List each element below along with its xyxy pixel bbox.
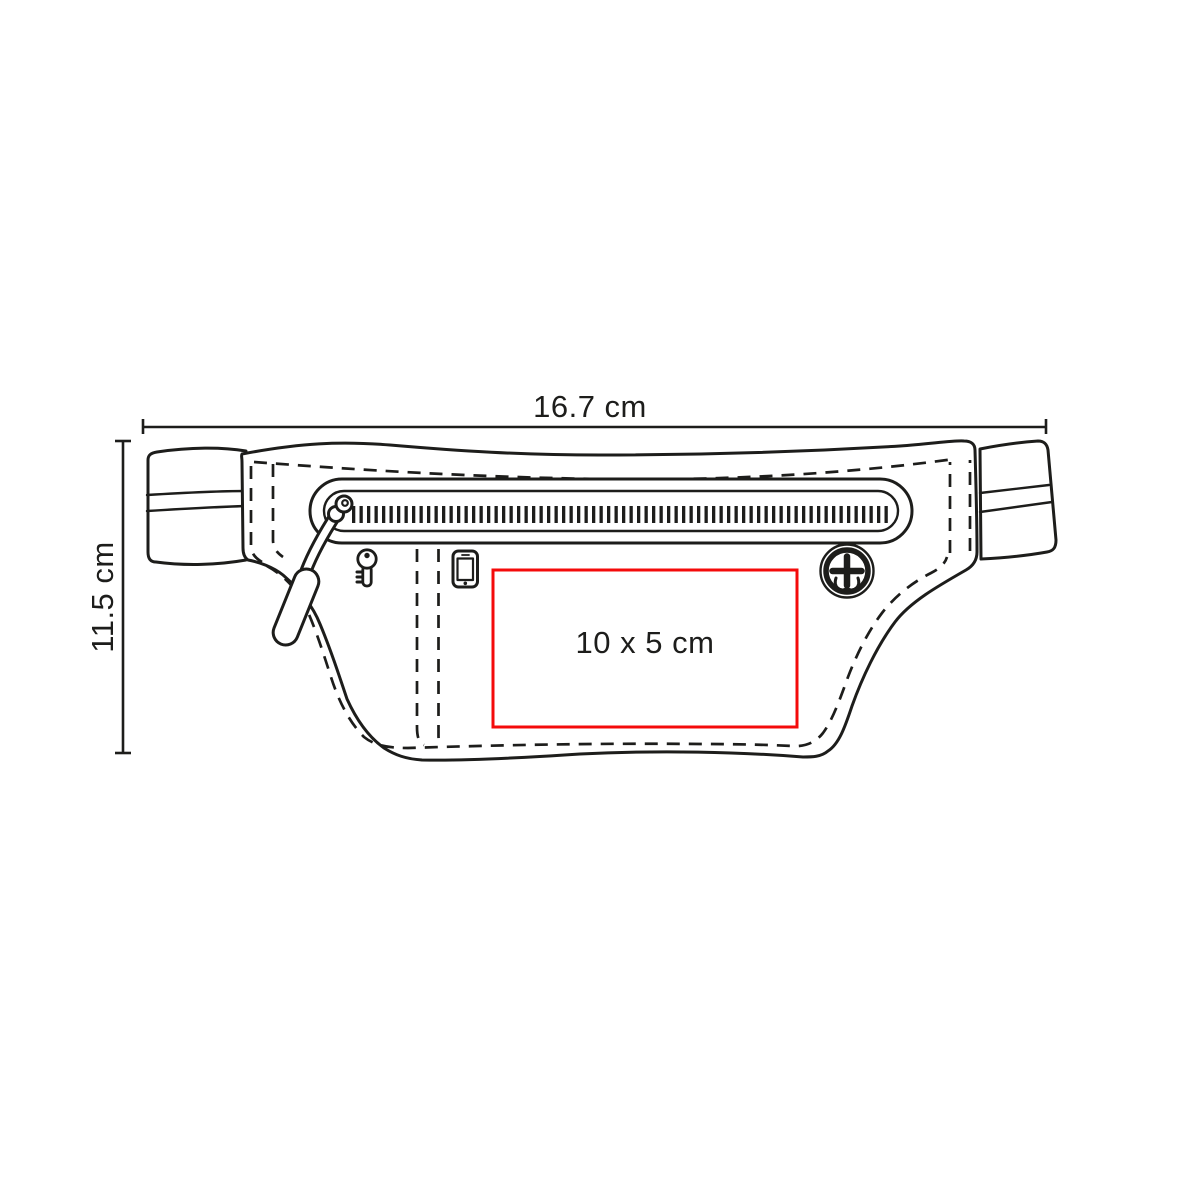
- height-dimension: 11.5 cm: [85, 441, 131, 753]
- audio-port-icon: [821, 545, 874, 598]
- print-area-label: 10 x 5 cm: [576, 625, 715, 660]
- left-strap: [147, 448, 246, 564]
- height-dimension-label: 11.5 cm: [85, 541, 120, 652]
- right-strap: [980, 441, 1056, 559]
- smartphone-icon: [453, 551, 478, 587]
- product-diagram: 16.7 cm 11.5 cm: [0, 0, 1200, 1200]
- diagram-canvas: 16.7 cm 11.5 cm: [0, 0, 1200, 1200]
- width-dimension-label: 16.7 cm: [533, 389, 647, 424]
- width-dimension: 16.7 cm: [143, 389, 1046, 434]
